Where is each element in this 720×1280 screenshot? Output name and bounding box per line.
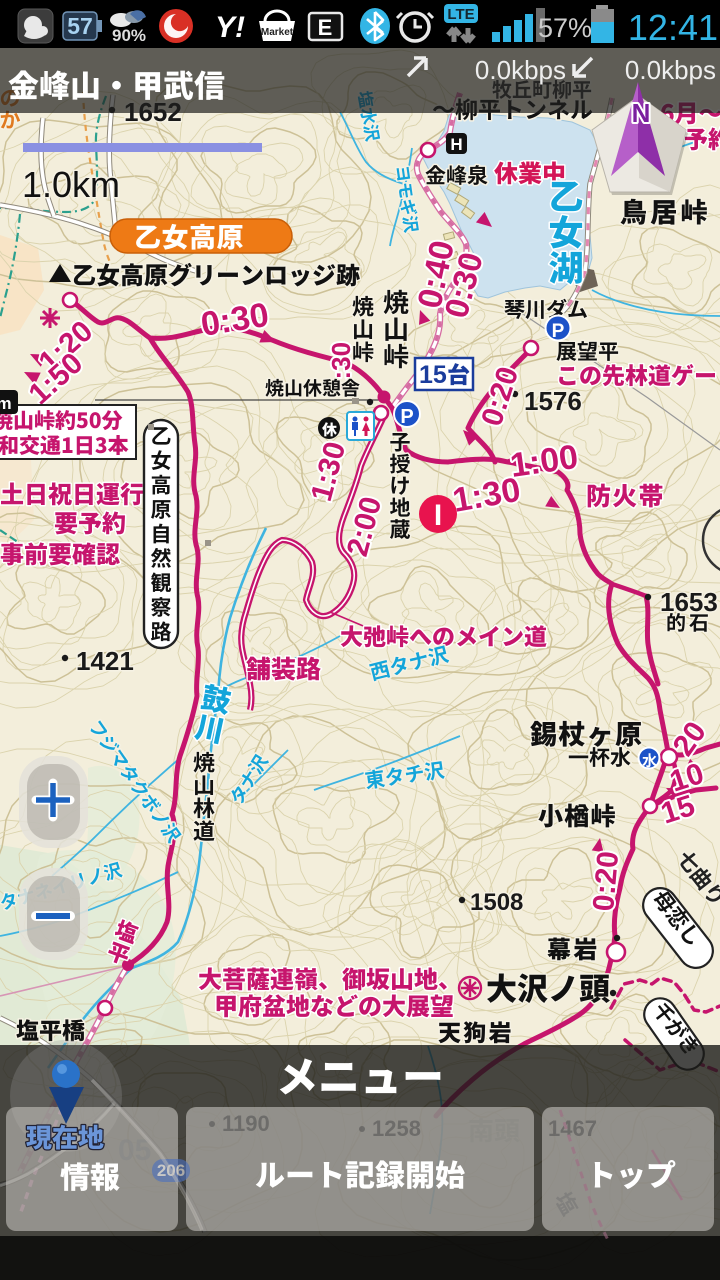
svg-text:12:41: 12:41 [628,7,718,48]
svg-text:15: 15 [419,361,447,389]
svg-text:90%: 90% [112,26,146,45]
svg-text:1.0km: 1.0km [22,164,120,205]
svg-text:Market: Market [261,27,294,38]
svg-text:1190: 1190 [222,1111,270,1136]
svg-text:LTE: LTE [447,6,474,23]
svg-text:1421: 1421 [76,646,134,676]
svg-text:m: m [0,394,12,413]
svg-text:1467: 1467 [548,1116,597,1141]
svg-text:0.0kbps: 0.0kbps [475,55,566,85]
svg-text:1508: 1508 [470,889,523,916]
svg-text:H: H [450,135,462,154]
svg-text:P: P [552,321,565,342]
svg-text:1653: 1653 [660,587,718,617]
svg-text:0.0kbps: 0.0kbps [625,55,716,85]
svg-text:57: 57 [67,13,93,39]
svg-text:57%: 57% [538,13,592,43]
svg-text:E: E [318,15,333,40]
svg-text:1258: 1258 [372,1116,421,1141]
svg-text:P: P [400,406,413,428]
svg-text:N: N [632,98,651,128]
svg-text:I: I [434,499,442,532]
svg-text:0:20: 0:20 [587,850,625,913]
svg-text:1576: 1576 [524,386,582,416]
svg-text:Y!: Y! [215,11,245,44]
